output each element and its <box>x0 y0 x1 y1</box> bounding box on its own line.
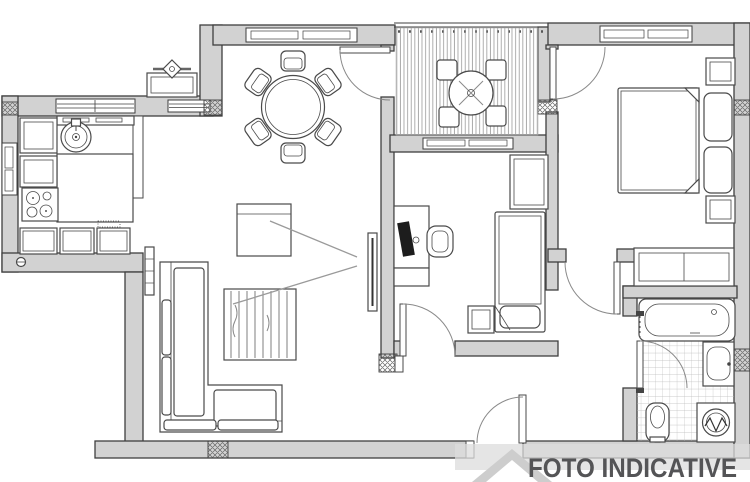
nightstand <box>706 196 735 223</box>
watermark-text: FOTO INDICATIVE <box>528 453 737 482</box>
dining-chair <box>281 143 305 163</box>
terrace-table <box>449 71 493 115</box>
pillar <box>734 349 750 371</box>
living-area <box>145 204 377 432</box>
console-radiator <box>147 60 197 97</box>
bathroom <box>636 299 735 442</box>
pillow <box>704 147 732 193</box>
wall-segment <box>623 286 737 298</box>
dining-table <box>262 76 325 139</box>
bathtub <box>639 299 735 341</box>
window <box>56 99 135 113</box>
pillar <box>2 102 18 115</box>
cooktop <box>22 188 58 221</box>
pillar <box>204 100 222 115</box>
pillow <box>704 93 732 141</box>
closet <box>634 248 734 286</box>
nightstand <box>468 306 494 333</box>
bedroom-main <box>618 58 735 286</box>
wall-segment <box>455 341 558 356</box>
gas-valve-icon <box>17 258 26 267</box>
single-bed <box>495 212 545 332</box>
entrance-door <box>477 395 526 443</box>
wall-segment <box>617 249 635 262</box>
double-bed <box>618 88 732 193</box>
pillar <box>379 354 397 372</box>
wall-segment <box>623 388 637 441</box>
coffee-table <box>237 204 291 256</box>
pillar <box>538 100 557 114</box>
desk-chair <box>427 226 453 257</box>
wall-segment <box>125 272 143 443</box>
window <box>600 26 692 42</box>
wall-end-cap <box>395 356 403 372</box>
wall-segment <box>95 441 473 458</box>
watermark: FOTO INDICATIVE <box>455 444 750 482</box>
dining-chair <box>281 51 305 71</box>
pillar <box>734 100 750 115</box>
washing-machine <box>697 403 735 442</box>
kitchen-floor-lattice <box>57 154 133 222</box>
pillar <box>208 441 228 458</box>
wall-segment <box>548 249 566 262</box>
window <box>246 28 357 42</box>
wardrobe <box>510 155 548 209</box>
rug <box>224 289 296 360</box>
pillow <box>500 306 540 328</box>
interior-thin-wall <box>133 116 143 198</box>
bedroom-main-terrace-door <box>550 47 605 99</box>
tv <box>368 233 377 311</box>
floor-plan-svg: FOTO INDICATIVE <box>0 0 750 482</box>
bedroom-second-door <box>400 304 455 356</box>
wall-radiator <box>145 247 154 295</box>
toilet <box>646 403 669 442</box>
bedroom-main-hall-door <box>565 262 620 314</box>
kitchen <box>17 116 135 267</box>
terrace <box>396 28 538 135</box>
window <box>423 138 513 149</box>
window <box>2 143 17 195</box>
terrace-door <box>340 47 390 100</box>
wall-segment <box>734 23 750 458</box>
floor-plan-image: FOTO INDICATIVE <box>0 0 750 482</box>
nightstand <box>706 58 735 85</box>
washbasin <box>703 342 734 386</box>
